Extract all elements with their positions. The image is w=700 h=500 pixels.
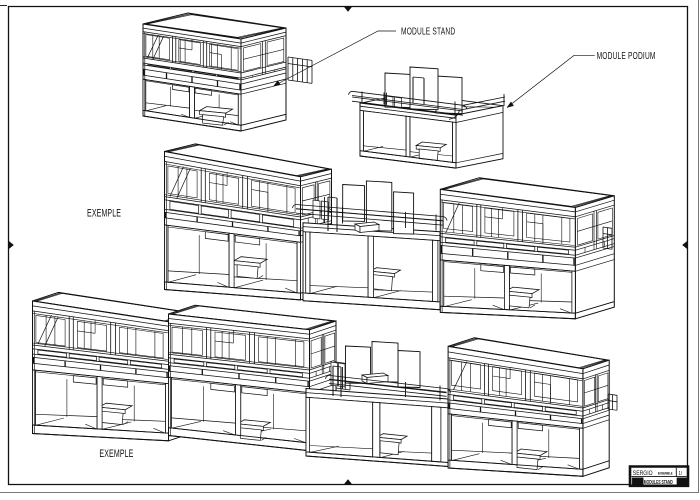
svg-text:MODULE PODIUM: MODULE PODIUM xyxy=(597,50,656,62)
svg-text:1/: 1/ xyxy=(679,471,683,478)
svg-text:MODULE STAND: MODULE STAND xyxy=(401,25,455,37)
svg-text:EXEMPLE: EXEMPLE xyxy=(87,207,121,219)
svg-text:SERGIO: SERGIO xyxy=(633,471,653,477)
svg-text:ENSEMBLE: ENSEMBLE xyxy=(658,471,673,475)
svg-text:EXEMPLE: EXEMPLE xyxy=(99,447,133,459)
svg-text:MODULES STAND: MODULES STAND xyxy=(644,479,673,485)
